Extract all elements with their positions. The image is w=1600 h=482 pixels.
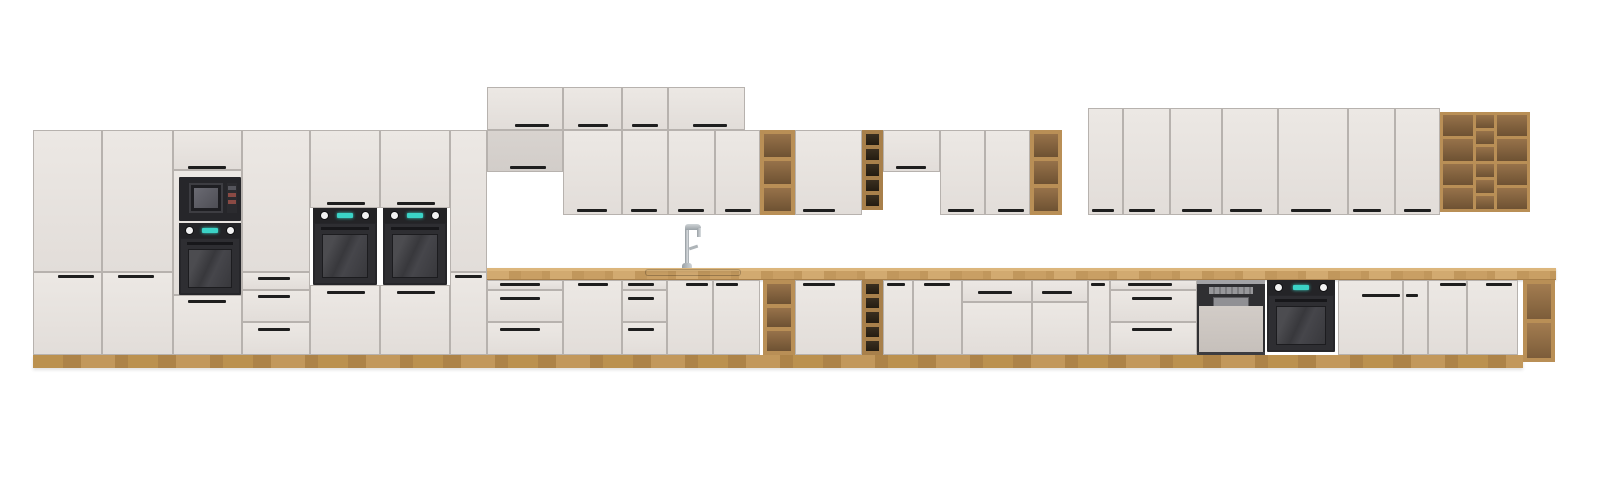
wine-rack-wall-unit: [862, 130, 883, 210]
oven-knob: [321, 212, 328, 219]
shelf-compartment: [1034, 134, 1058, 157]
base-cabinet-door: [795, 280, 862, 355]
shelf-compartment: [1443, 115, 1473, 136]
handle: [500, 328, 540, 331]
dishwasher-vent: [1209, 287, 1253, 294]
handle: [258, 277, 290, 280]
handle: [1128, 283, 1172, 286]
handle: [803, 209, 835, 212]
oven-door-handle: [1275, 299, 1327, 302]
drawer-front: [622, 290, 667, 322]
oven-door: [1269, 296, 1333, 350]
base-cabinet-door: [1403, 280, 1428, 355]
oven-door: [385, 224, 445, 283]
oven-knob: [362, 212, 369, 219]
microwave-button: [228, 186, 236, 190]
kitchen-cabinet-lineup-render: [0, 0, 1600, 482]
tall-cabinet-door: [173, 295, 242, 355]
handle: [1486, 283, 1512, 286]
handle: [1092, 209, 1114, 212]
handle: [628, 328, 654, 331]
handle: [896, 166, 926, 169]
drawer-front: [242, 272, 310, 290]
handle: [924, 283, 950, 286]
microwave-button: [228, 200, 236, 204]
oven-control-panel: [179, 223, 241, 238]
open-end-shelf: [1523, 280, 1555, 362]
shelf-compartment: [1443, 139, 1473, 160]
shelf-compartment: [764, 134, 791, 157]
handle: [397, 202, 435, 205]
oven-window: [1276, 306, 1326, 345]
dishwasher: [1197, 280, 1265, 355]
wall-cabinet-door: [622, 130, 668, 215]
shelf-compartment: [1497, 115, 1527, 136]
shelf-compartment: [866, 327, 879, 337]
wall-cabinet-door: [563, 130, 622, 215]
handle: [998, 209, 1024, 212]
shelf-compartment: [1443, 188, 1473, 209]
built-in-oven: [313, 208, 377, 285]
wall-cabinet-door: [1278, 108, 1348, 215]
handle: [327, 202, 365, 205]
plinth: [33, 355, 1523, 368]
wall-cabinet-door: [715, 130, 760, 215]
tall-cabinet-door: [102, 130, 173, 272]
dishwasher-control-band: [1197, 284, 1265, 306]
faucet: [676, 224, 704, 268]
handle: [693, 124, 727, 127]
handle: [58, 275, 94, 278]
base-cabinet-door: [1032, 302, 1088, 355]
shelf-column: [1443, 115, 1473, 209]
faucet-spout: [697, 228, 701, 237]
handle: [1042, 291, 1072, 294]
handle: [327, 291, 365, 294]
tall-cabinet-door: [102, 272, 173, 355]
tall-cabinet-door: [310, 130, 380, 208]
sink-cabinet-door: [667, 280, 713, 355]
handle: [1406, 294, 1418, 297]
handle: [631, 209, 657, 212]
handle: [510, 166, 546, 169]
dishwasher-front-panel: [1199, 306, 1263, 352]
wall-cabinet-door: [668, 130, 715, 215]
tall-cabinet-door: [33, 130, 102, 272]
open-shelf-grid-unit: [1440, 112, 1530, 212]
oven-knob: [227, 227, 234, 234]
tall-cabinet-door: [380, 285, 450, 355]
shelf-compartment: [1527, 323, 1551, 358]
tall-cabinet-door: [310, 285, 380, 355]
handle: [716, 283, 738, 286]
handle: [500, 297, 540, 300]
handle: [725, 209, 751, 212]
shelf-compartment: [764, 188, 791, 211]
handle: [1353, 209, 1381, 212]
wine-rack-base-unit: [862, 280, 883, 355]
tall-cabinet-door: [380, 130, 450, 208]
oven-door: [181, 239, 239, 293]
tall-cabinet-top-door: [173, 130, 242, 170]
handle: [1132, 328, 1172, 331]
microwave-screen: [194, 188, 218, 208]
built-in-oven: [1267, 280, 1335, 352]
shelf-column: [1476, 115, 1494, 209]
wall-cabinet-door: [795, 130, 862, 215]
base-cabinet-door: [1428, 280, 1467, 355]
oven-door: [315, 224, 375, 283]
wall-cabinet-door: [1395, 108, 1440, 215]
sink-cabinet-door: [713, 280, 760, 355]
open-shelf-wall-unit: [760, 130, 795, 215]
oven-knob: [391, 212, 398, 219]
handle: [578, 283, 608, 286]
wall-cabinet-door: [1123, 108, 1170, 215]
handle: [1091, 283, 1105, 286]
oven-control-panel: [313, 208, 377, 223]
wall-cabinet-door: [940, 130, 985, 215]
shelf-compartment: [1476, 196, 1494, 209]
drawer-front: [487, 290, 563, 322]
shelf-compartment: [866, 298, 879, 308]
wall-cabinet-door: [1222, 108, 1278, 215]
shelf-compartment: [866, 284, 879, 294]
wall-cabinet-door: [1088, 108, 1123, 215]
sink: [645, 269, 741, 276]
handle: [678, 209, 704, 212]
oven-door-handle: [187, 242, 233, 245]
handle: [1230, 209, 1262, 212]
handle: [1362, 294, 1400, 297]
oven-knob: [432, 212, 439, 219]
handle: [1132, 297, 1172, 300]
oven-display: [407, 213, 423, 218]
microwave-button: [228, 193, 236, 197]
shelf-compartment: [866, 341, 879, 351]
handle: [1182, 209, 1212, 212]
open-shelf-wall-unit: [1030, 130, 1062, 215]
shelf-compartment: [1527, 284, 1551, 319]
handle: [397, 291, 435, 294]
shelf-compartment: [767, 284, 791, 304]
handle: [686, 283, 708, 286]
oven-window: [392, 234, 438, 278]
oven-window: [322, 234, 368, 278]
open-shelf-base-unit: [763, 280, 795, 355]
handle: [803, 283, 835, 286]
dishwasher-kick: [1197, 352, 1265, 355]
shelf-compartment: [1497, 164, 1527, 185]
handle: [258, 295, 290, 298]
base-cabinet-door: [1338, 280, 1403, 355]
shelf-compartment: [1497, 139, 1527, 160]
handle: [628, 283, 654, 286]
shelf-compartment: [1497, 188, 1527, 209]
tall-cabinet-door: [33, 272, 102, 355]
built-in-oven: [383, 208, 447, 285]
faucet-lever: [689, 245, 698, 251]
wall-cabinet-door: [1348, 108, 1395, 215]
handle: [978, 291, 1012, 294]
handle: [188, 300, 226, 303]
handle: [632, 124, 658, 127]
handle: [1404, 209, 1431, 212]
shelf-compartment: [1476, 147, 1494, 160]
handle: [1291, 209, 1331, 212]
handle: [578, 124, 608, 127]
handle: [500, 283, 540, 286]
handle: [887, 283, 905, 286]
shelf-compartment: [866, 312, 879, 322]
base-cabinet-door: [1088, 280, 1110, 355]
shelf-compartment: [1034, 188, 1058, 211]
oven-door-handle: [321, 227, 369, 230]
handle: [118, 275, 154, 278]
oven-window: [188, 249, 232, 288]
drawer-front: [622, 322, 667, 355]
built-in-microwave: [179, 177, 241, 221]
handle: [258, 328, 290, 331]
shelf-compartment: [866, 134, 879, 145]
drawer-front: [1110, 322, 1197, 355]
shelf-compartment: [1476, 164, 1494, 177]
handle: [1129, 209, 1155, 212]
tall-cabinet-door: [242, 130, 310, 272]
wall-cabinet-door: [985, 130, 1030, 215]
oven-control-panel: [1267, 280, 1335, 295]
base-cabinet-door: [883, 280, 913, 355]
microwave-controls: [227, 183, 237, 213]
oven-display: [337, 213, 353, 218]
tall-cabinet-door: [450, 272, 487, 355]
shelf-compartment: [866, 180, 879, 191]
handle: [948, 209, 974, 212]
oven-display: [1293, 285, 1309, 290]
drawer-front: [242, 322, 310, 355]
drawer-front: [1110, 290, 1197, 322]
oven-control-panel: [383, 208, 447, 223]
shelf-compartment: [866, 149, 879, 160]
faucet-base: [682, 263, 692, 268]
handle: [1440, 283, 1466, 286]
oven-display: [202, 228, 218, 233]
shelf-compartment: [866, 195, 879, 206]
handle: [515, 124, 549, 127]
shelf-compartment: [764, 161, 791, 184]
built-in-oven: [179, 223, 241, 295]
shelf-compartment: [1443, 164, 1473, 185]
shelf-compartment: [1034, 161, 1058, 184]
shelf-compartment: [1476, 180, 1494, 193]
shelf-compartment: [767, 308, 791, 328]
shelf-compartment: [1476, 131, 1494, 144]
wall-cabinet-door: [1170, 108, 1222, 215]
shelf-column: [1497, 115, 1527, 209]
base-cabinet-door: [962, 302, 1032, 355]
handle: [628, 297, 654, 300]
handle: [188, 166, 226, 169]
oven-knob: [1275, 284, 1282, 291]
base-cabinet-door: [563, 280, 622, 355]
shelf-compartment: [1476, 115, 1494, 128]
tall-cabinet-door: [450, 130, 487, 272]
microwave-window: [189, 183, 223, 213]
oven-knob: [1320, 284, 1327, 291]
handle: [577, 209, 607, 212]
base-cabinet-door: [913, 280, 962, 355]
oven-knob: [186, 227, 193, 234]
shelf-compartment: [767, 331, 791, 351]
shelf-compartment: [866, 164, 879, 175]
faucet-stem: [685, 228, 689, 264]
base-cabinet-door: [1467, 280, 1518, 355]
drawer-front: [487, 322, 563, 355]
oven-door-handle: [391, 227, 439, 230]
handle: [455, 275, 482, 278]
